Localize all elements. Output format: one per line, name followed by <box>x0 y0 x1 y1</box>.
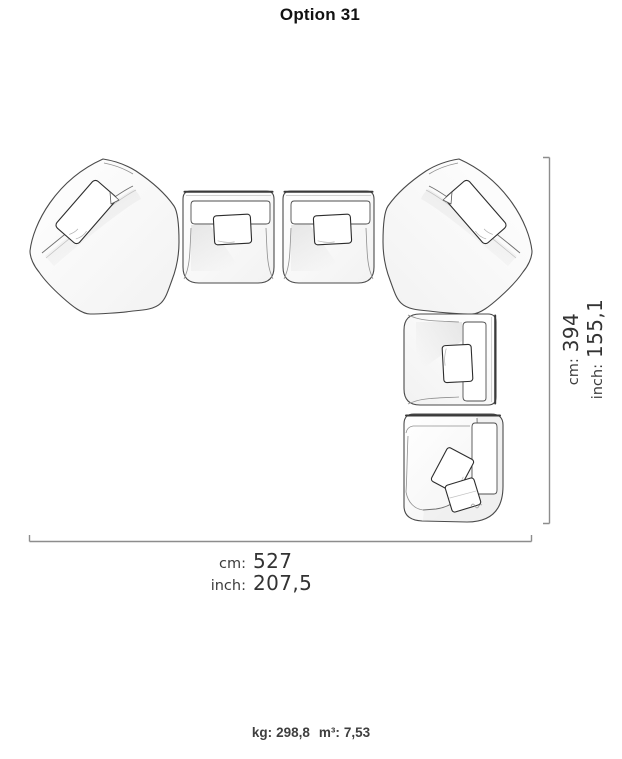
sofa-top-view-diagram <box>0 0 622 759</box>
horizontal-inch-value: 207,5 <box>253 574 312 593</box>
vertical-inch-label: inch: <box>590 364 606 399</box>
vertical-cm-value: 394 <box>559 313 583 352</box>
kg-value: 298,8 <box>276 725 310 740</box>
vertical-cm-row: cm:394 <box>561 284 585 414</box>
seat-module-2 <box>283 191 374 283</box>
horizontal-inch-label: inch: <box>110 577 246 596</box>
horizontal-inch-row: inch:207,5 <box>110 574 312 596</box>
corner-module-left <box>30 159 179 314</box>
horizontal-dimension-label: cm:527 inch:207,5 <box>110 552 312 595</box>
corner-module-right <box>383 159 532 314</box>
spec-sheet-page: Option 31 <box>0 0 622 759</box>
m3-value: 7,53 <box>344 725 370 740</box>
horizontal-cm-value: 527 <box>253 552 312 571</box>
vertical-inch-value: 155,1 <box>583 299 607 358</box>
end-module <box>404 414 503 522</box>
kg-label: kg: <box>252 725 272 740</box>
seat-module-3 <box>404 314 496 405</box>
seat-module-1 <box>183 191 274 283</box>
weight-volume-specs: kg:298,8m³:7,53 <box>0 725 622 740</box>
vertical-cm-label: cm: <box>566 358 582 385</box>
horizontal-dimension-ticks <box>30 535 532 542</box>
vertical-dimension-ticks <box>543 158 550 524</box>
vertical-inch-row: inch:155,1 <box>585 284 609 414</box>
vertical-dimension-label: cm:394 inch:155,1 <box>561 284 605 414</box>
horizontal-cm-label: cm: <box>110 555 246 574</box>
m3-label: m³: <box>319 725 340 740</box>
